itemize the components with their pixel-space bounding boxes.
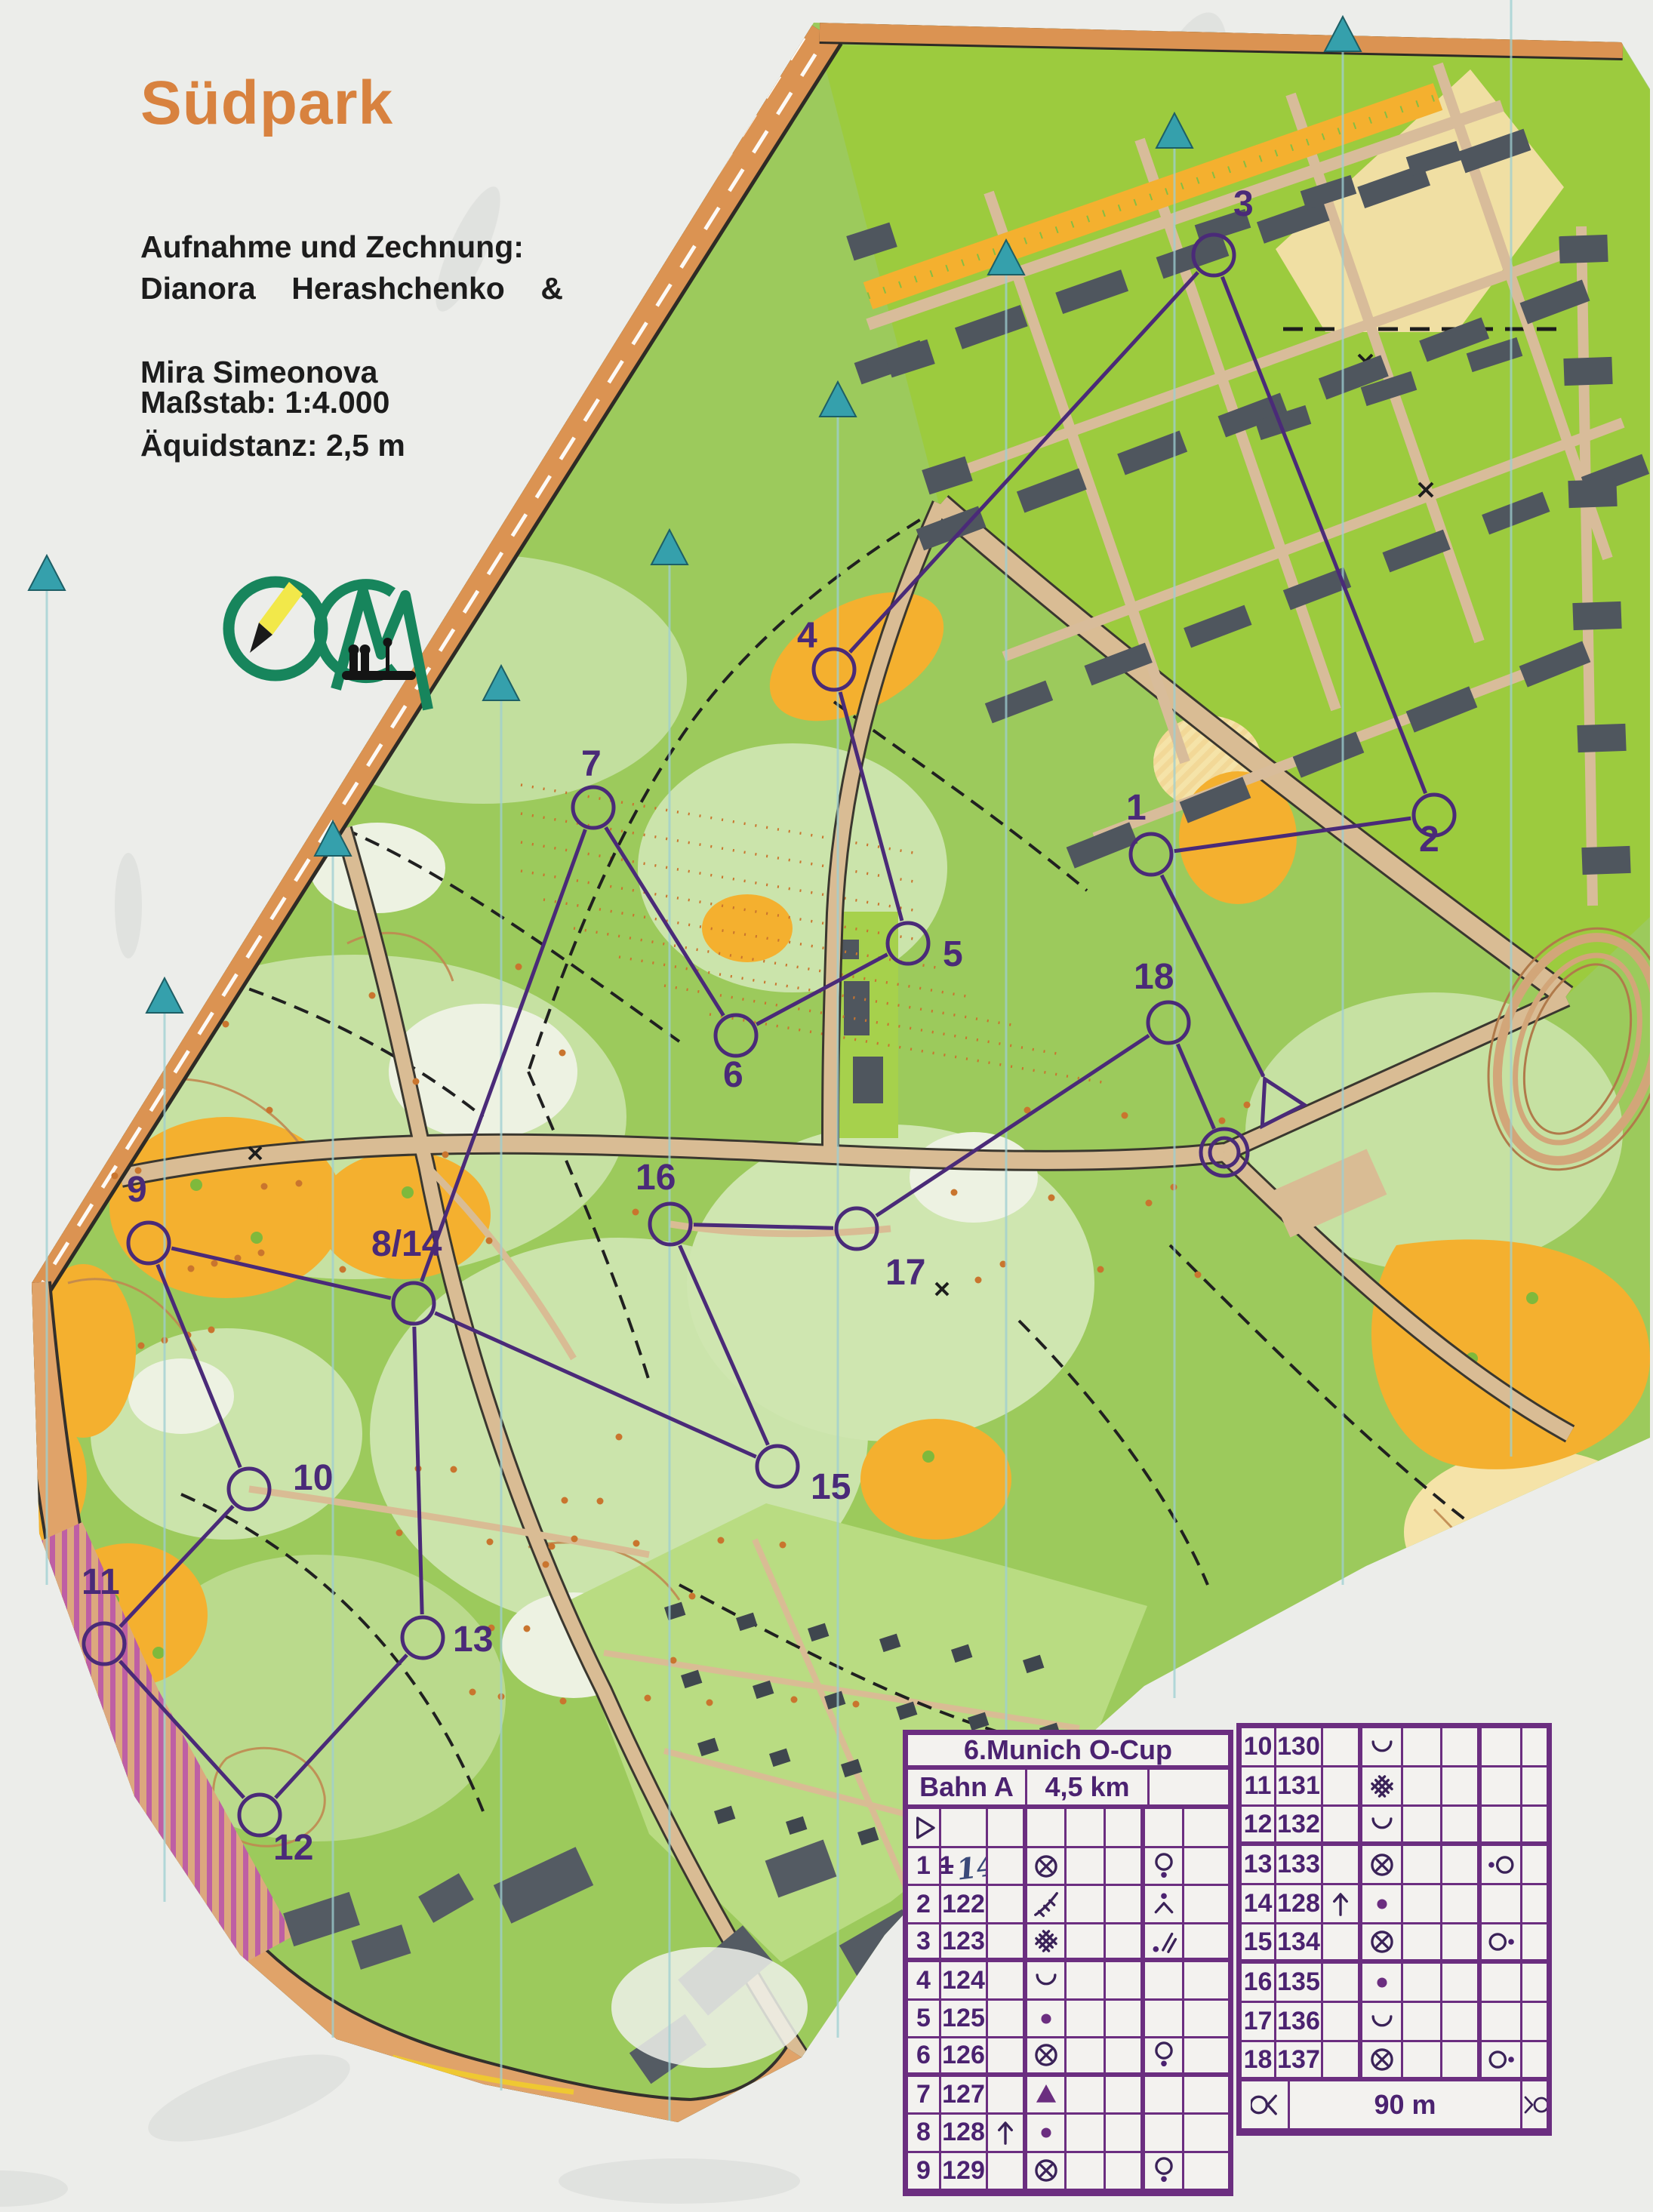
cd-dimensions-row-3 (1106, 1924, 1145, 1962)
cd-appearance-row-3 (1067, 1924, 1106, 1962)
cd-appearance-row-11 (1403, 1767, 1442, 1807)
scanned-orienteering-map-page: 12345678/1491011121315161718 Südpark Auf… (0, 0, 1653, 2212)
control-number-2: 2 (1419, 820, 1439, 860)
control-number-5: 5 (943, 934, 963, 974)
control-number-3: 3 (1233, 184, 1254, 224)
cd-dimensions-row-13 (1442, 1846, 1482, 1885)
cd-direction-row-17 (1323, 2003, 1362, 2042)
cd-dimensions-row-10 (1442, 1728, 1482, 1767)
control-number-10: 10 (293, 1458, 333, 1498)
cd-other-row-8 (1184, 2115, 1228, 2152)
map-title: Südpark (140, 68, 393, 139)
cd-other-row-5 (1184, 2001, 1228, 2038)
cd-number-row-16: 16 (1242, 1964, 1276, 2003)
cd-number-row-2: 2 (908, 1886, 941, 1924)
cd-number-row-13: 13 (1242, 1846, 1276, 1885)
control-number-11: 11 (82, 1562, 120, 1602)
start-row-cell (1106, 1809, 1145, 1848)
cd-combination-row-15 (1482, 1924, 1522, 1964)
cd-dimensions-row-15 (1442, 1924, 1482, 1964)
control-number-9: 9 (127, 1170, 147, 1210)
cd-feature-row-3 (1027, 1924, 1067, 1962)
cd-code-row-17: 136 (1276, 2003, 1323, 2042)
cd-appearance-row-13 (1403, 1846, 1442, 1885)
cd-feature-row-7 (1027, 2077, 1067, 2115)
cd-dimensions-row-2 (1106, 1886, 1145, 1924)
course-length: 4,5 km (1027, 1770, 1150, 1809)
cd-combination-row-5 (1145, 2001, 1184, 2038)
cd-number-row-14: 14 (1242, 1885, 1276, 1924)
cd-direction-row-15 (1323, 1924, 1362, 1964)
cd-combination-row-8 (1145, 2115, 1184, 2152)
cd-direction-row-9 (988, 2153, 1027, 2191)
cd-combination-row-6 (1145, 2038, 1184, 2076)
start-row-cell (941, 1809, 988, 1848)
cd-feature-row-6 (1027, 2038, 1067, 2076)
cd-code-row-18: 137 (1276, 2042, 1323, 2081)
cd-number-row-5: 5 (908, 2001, 941, 2038)
cd-direction-row-6 (988, 2038, 1027, 2076)
event-title: 6.Munich O-Cup (908, 1735, 1228, 1770)
control-number-16: 16 (636, 1158, 676, 1198)
cd-feature-row-15 (1362, 1924, 1403, 1964)
cd-code-row-1: 121142 (941, 1848, 988, 1886)
course-name: Bahn A (908, 1770, 1027, 1809)
cd-dimensions-row-9 (1106, 2153, 1145, 2191)
cd-dimensions-row-5 (1106, 2001, 1145, 2038)
cd-combination-row-11 (1482, 1767, 1522, 1807)
finish-distance: 90 m (1290, 2081, 1522, 2130)
cd-number-row-3: 3 (908, 1924, 941, 1962)
cd-direction-row-8 (988, 2115, 1027, 2152)
cd-other-row-1 (1184, 1848, 1228, 1886)
cd-code-row-2: 122 (941, 1886, 988, 1924)
cd-appearance-row-12 (1403, 1807, 1442, 1846)
cd-number-row-18: 18 (1242, 2042, 1276, 2081)
cd-combination-row-14 (1482, 1885, 1522, 1924)
cd-combination-row-3 (1145, 1924, 1184, 1962)
cd-number-row-6: 6 (908, 2038, 941, 2076)
cd-other-row-9 (1184, 2153, 1228, 2191)
cd-other-row-3 (1184, 1924, 1228, 1962)
cd-code-row-13: 133 (1276, 1846, 1323, 1885)
cd-appearance-row-9 (1067, 2153, 1106, 2191)
control-number-12: 12 (273, 1828, 313, 1868)
cd-direction-row-3 (988, 1924, 1027, 1962)
cd-appearance-row-2 (1067, 1886, 1106, 1924)
cd-feature-row-4 (1027, 1962, 1067, 2000)
cd-combination-row-10 (1482, 1728, 1522, 1767)
cd-other-row-15 (1522, 1924, 1547, 1964)
cd-appearance-row-5 (1067, 2001, 1106, 2038)
cd-dimensions-row-18 (1442, 2042, 1482, 2081)
cd-feature-row-13 (1362, 1846, 1403, 1885)
cd-direction-row-1 (988, 1848, 1027, 1886)
start-row-cell (1027, 1809, 1067, 1848)
cd-combination-row-2 (1145, 1886, 1184, 1924)
cd-feature-row-11 (1362, 1767, 1403, 1807)
cd-combination-row-4 (1145, 1962, 1184, 2000)
club-logo-icon (223, 562, 449, 717)
control-number-6: 6 (723, 1055, 743, 1095)
cd-combination-row-18 (1482, 2042, 1522, 2081)
cd-other-row-7 (1184, 2077, 1228, 2115)
start-row-cell (1145, 1809, 1184, 1848)
cd-feature-row-12 (1362, 1807, 1403, 1846)
contour-interval: Äquidstanz: 2,5 m (140, 428, 405, 463)
cd-direction-row-11 (1323, 1767, 1362, 1807)
cd-number-row-17: 17 (1242, 2003, 1276, 2042)
cd-direction-row-18 (1323, 2042, 1362, 2081)
start-row-cell (1067, 1809, 1106, 1848)
cd-feature-row-10 (1362, 1728, 1403, 1767)
cd-direction-row-5 (988, 2001, 1027, 2038)
cd-combination-row-9 (1145, 2153, 1184, 2191)
control-number-13: 13 (453, 1620, 493, 1660)
cd-other-row-4 (1184, 1962, 1228, 2000)
cd-other-row-6 (1184, 2038, 1228, 2076)
cd-code-row-3: 123 (941, 1924, 988, 1962)
cd-code-row-10: 130 (1276, 1728, 1323, 1767)
cd-other-row-2 (1184, 1886, 1228, 1924)
cd-feature-row-2 (1027, 1886, 1067, 1924)
cd-other-row-18 (1522, 2042, 1547, 2081)
control-number-15: 15 (811, 1467, 851, 1507)
control-number-17: 17 (885, 1253, 925, 1293)
control-description-table-right: 1013011131121321313314128151341613517136… (1236, 1723, 1552, 2136)
cd-feature-row-16 (1362, 1964, 1403, 2003)
cd-number-row-9: 9 (908, 2153, 941, 2191)
cd-direction-row-16 (1323, 1964, 1362, 2003)
cd-appearance-row-1 (1067, 1848, 1106, 1886)
credits-block: Aufnahme und Zechnung: Dianora Herashche… (140, 226, 578, 393)
cd-dimensions-row-8 (1106, 2115, 1145, 2152)
start-symbol-cell (908, 1809, 941, 1848)
cd-code-row-8: 128 (941, 2115, 988, 2152)
cd-appearance-row-14 (1403, 1885, 1442, 1924)
cd-dimensions-row-12 (1442, 1807, 1482, 1846)
cd-direction-row-10 (1323, 1728, 1362, 1767)
cd-code-row-11: 131 (1276, 1767, 1323, 1807)
cd-code-row-5: 125 (941, 2001, 988, 2038)
cd-dimensions-row-17 (1442, 2003, 1482, 2042)
cd-other-row-17 (1522, 2003, 1547, 2042)
control-number-7: 7 (581, 744, 602, 784)
scale-block: Maßstab: 1:4.000 Äquidstanz: 2,5 m (140, 381, 405, 468)
cd-number-row-7: 7 (908, 2077, 941, 2115)
cd-feature-row-1 (1027, 1848, 1067, 1886)
cd-direction-row-12 (1323, 1807, 1362, 1846)
cd-dimensions-row-7 (1106, 2077, 1145, 2115)
finish-route-start-symbol (1242, 2081, 1290, 2130)
control-number-1: 1 (1126, 788, 1147, 828)
cd-appearance-row-18 (1403, 2042, 1442, 2081)
cd-code-row-12: 132 (1276, 1807, 1323, 1846)
cd-combination-row-7 (1145, 2077, 1184, 2115)
cd-number-row-10: 10 (1242, 1728, 1276, 1767)
cd-feature-row-5 (1027, 2001, 1067, 2038)
control-number-8: 8/14 (371, 1224, 442, 1264)
cd-direction-row-14 (1323, 1885, 1362, 1924)
credits-line1: Aufnahme und Zechnung: (140, 229, 524, 264)
cd-dimensions-row-4 (1106, 1962, 1145, 2000)
cd-combination-row-17 (1482, 2003, 1522, 2042)
cd-appearance-row-17 (1403, 2003, 1442, 2042)
cd-combination-row-13 (1482, 1846, 1522, 1885)
course-header-empty (1150, 1770, 1228, 1809)
cd-direction-row-2 (988, 1886, 1027, 1924)
cd-code-row-14: 128 (1276, 1885, 1323, 1924)
cd-other-row-14 (1522, 1885, 1547, 1924)
credits-line2: Dianora Herashchenko & (140, 268, 563, 352)
cd-appearance-row-10 (1403, 1728, 1442, 1767)
cd-dimensions-row-11 (1442, 1767, 1482, 1807)
cd-other-row-12 (1522, 1807, 1547, 1846)
start-row-cell (1184, 1809, 1228, 1848)
cd-number-row-1: 1 (908, 1848, 941, 1886)
cd-code-row-7: 127 (941, 2077, 988, 2115)
cd-combination-row-1 (1145, 1848, 1184, 1886)
cd-appearance-row-16 (1403, 1964, 1442, 2003)
cd-other-row-13 (1522, 1846, 1547, 1885)
cd-dimensions-row-6 (1106, 2038, 1145, 2076)
cd-code-row-9: 129 (941, 2153, 988, 2191)
cd-feature-row-18 (1362, 2042, 1403, 2081)
cd-appearance-row-6 (1067, 2038, 1106, 2076)
start-row-cell (988, 1809, 1027, 1848)
cd-direction-row-13 (1323, 1846, 1362, 1885)
cd-dimensions-row-1 (1106, 1848, 1145, 1886)
cd-code-row-6: 126 (941, 2038, 988, 2076)
control-number-4: 4 (797, 616, 817, 656)
cd-feature-row-9 (1027, 2153, 1067, 2191)
cd-code-row-16: 135 (1276, 1964, 1323, 2003)
cd-appearance-row-8 (1067, 2115, 1106, 2152)
cd-number-row-4: 4 (908, 1962, 941, 2000)
control-number-18: 18 (1134, 957, 1174, 997)
cd-appearance-row-7 (1067, 2077, 1106, 2115)
cd-appearance-row-4 (1067, 1962, 1106, 2000)
cd-feature-row-14 (1362, 1885, 1403, 1924)
cd-number-row-12: 12 (1242, 1807, 1276, 1846)
cd-code-row-4: 124 (941, 1962, 988, 2000)
cd-direction-row-4 (988, 1962, 1027, 2000)
cd-direction-row-7 (988, 2077, 1027, 2115)
cd-number-row-8: 8 (908, 2115, 941, 2152)
cd-code-row-15: 134 (1276, 1924, 1323, 1964)
map-scale: Maßstab: 1:4.000 (140, 385, 389, 420)
cd-dimensions-row-16 (1442, 1964, 1482, 2003)
cd-feature-row-8 (1027, 2115, 1067, 2152)
control-description-table-left: 6.Munich O-CupBahn A4,5 km11211422122312… (903, 1730, 1233, 2196)
cd-appearance-row-15 (1403, 1924, 1442, 1964)
cd-combination-row-12 (1482, 1807, 1522, 1846)
cd-dimensions-row-14 (1442, 1885, 1482, 1924)
finish-route-end-symbol (1522, 2081, 1547, 2130)
cd-other-row-10 (1522, 1728, 1547, 1767)
cd-number-row-11: 11 (1242, 1767, 1276, 1807)
cd-other-row-16 (1522, 1964, 1547, 2003)
cd-other-row-11 (1522, 1767, 1547, 1807)
cd-feature-row-17 (1362, 2003, 1403, 2042)
cd-combination-row-16 (1482, 1964, 1522, 2003)
cd-number-row-15: 15 (1242, 1924, 1276, 1964)
